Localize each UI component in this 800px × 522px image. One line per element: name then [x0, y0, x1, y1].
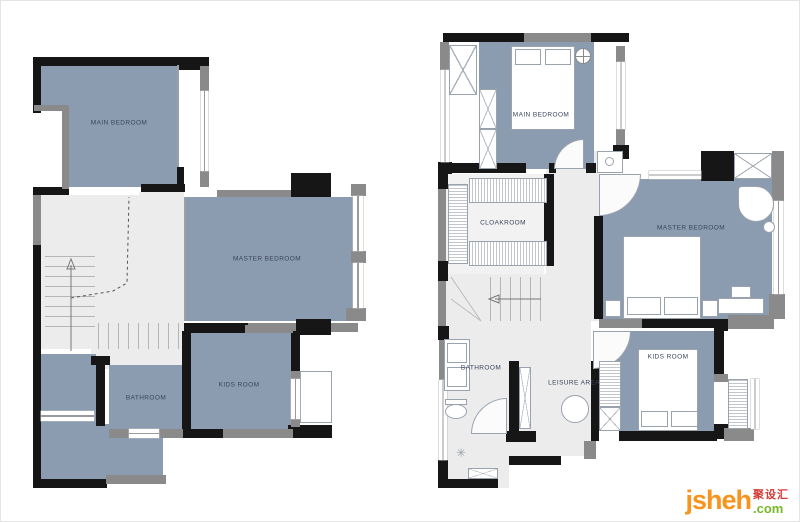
stairs-upper [481, 277, 544, 321]
stairs-left [45, 253, 95, 336]
window [774, 201, 783, 294]
wall-segment-gray [728, 315, 774, 329]
ceiling-fan-icon [575, 48, 591, 64]
wall-segment-gray [109, 429, 129, 438]
wall-segment [586, 163, 596, 173]
hall-cabinet [519, 367, 531, 429]
wall-segment [438, 326, 449, 340]
room-label-kids-room-r: KIDS ROOM [648, 354, 689, 361]
tv-console [731, 286, 751, 298]
pillow [671, 411, 698, 427]
plant-icon [763, 221, 775, 233]
wall-segment [506, 431, 536, 442]
wall-segment-gray [200, 66, 209, 91]
closet [734, 153, 772, 179]
window [353, 263, 363, 308]
wall-segment [701, 151, 734, 181]
wall-segment [183, 429, 223, 438]
wall-segment-gray [217, 190, 291, 197]
room-label-master-bedroom-r: MASTER BEDROOM [657, 225, 725, 232]
pillow [664, 297, 698, 315]
wall-segment-gray [346, 308, 366, 321]
room-label-kids-room: KIDS ROOM [219, 382, 260, 389]
bay-window [300, 371, 332, 423]
wall-segment-gray [524, 33, 591, 42]
toilet-tank [445, 399, 467, 405]
wardrobe [479, 89, 497, 129]
room-label-bathroom: BATHROOM [126, 395, 166, 402]
wardrobe [479, 129, 497, 169]
room-label-bathroom-r: BATHROOM [461, 365, 501, 372]
wall-segment-gray [106, 475, 166, 484]
room-label-leisure-area: LEISURE AREA [548, 380, 600, 387]
wall-segment [438, 169, 448, 189]
wall-segment [96, 364, 105, 426]
wall-segment-gray [351, 251, 366, 263]
wall-segment-gray [772, 151, 784, 179]
wall-segment [591, 33, 629, 42]
window [353, 196, 363, 251]
room-label-master-bedroom: MASTER BEDROOM [233, 256, 301, 263]
wall-segment [177, 167, 184, 187]
window [201, 91, 208, 171]
window [291, 379, 300, 419]
wall-segment-gray [159, 429, 183, 438]
wall-segment [291, 173, 331, 197]
wall-segment [33, 245, 41, 349]
window [41, 411, 94, 421]
wall-segment [714, 331, 724, 376]
sink-basin [447, 343, 467, 363]
nightstand [702, 300, 718, 317]
wall-segment-gray [584, 441, 596, 459]
toilet [445, 404, 467, 419]
wall-segment [619, 431, 717, 441]
wall-segment [443, 33, 524, 42]
window [441, 70, 449, 162]
wall-segment-gray [440, 42, 449, 70]
wc-fixture [605, 157, 614, 166]
wall-segment [594, 216, 603, 319]
clothes-rack [469, 178, 547, 203]
pillow [627, 297, 661, 315]
wall-segment-gray [438, 189, 446, 261]
floorplan-canvas: MAIN BEDROOM MASTER BEDROOM KIDS ROOM BA… [0, 0, 800, 522]
tv-stand [718, 298, 764, 314]
brand-tld: .com [753, 502, 789, 515]
wall-segment [91, 356, 110, 365]
pillow [641, 411, 668, 427]
wardrobe [599, 361, 621, 407]
wall-segment-gray [351, 184, 366, 196]
wall-segment-gray [438, 281, 446, 326]
wall-segment-gray [616, 129, 625, 145]
wall-segment [182, 331, 191, 431]
room-label-main-bedroom-r: MAIN BEDROOM [513, 112, 569, 119]
wall-segment [591, 361, 599, 441]
window [129, 429, 159, 438]
watermark-logo: jsheh 聚设汇 .com [685, 488, 789, 515]
wall-segment [438, 479, 498, 488]
wall-segment-gray [62, 111, 69, 189]
room-label-main-bedroom: MAIN BEDROOM [91, 120, 147, 127]
wall-segment-gray [331, 323, 358, 332]
bay-radiator [728, 379, 748, 429]
wall-segment [184, 323, 248, 331]
wall-line [177, 65, 179, 167]
shower-drain-icon: ✳ [456, 447, 466, 459]
window [617, 62, 625, 129]
wardrobe [599, 407, 621, 431]
wall-segment-gray [291, 419, 300, 427]
wall-segment-gray [616, 46, 625, 62]
pillow [515, 49, 541, 65]
wall-segment-gray [772, 179, 784, 201]
stairs-winders [451, 277, 481, 321]
wall-line [184, 197, 186, 321]
wall-segment-gray [724, 428, 754, 441]
closet [449, 45, 477, 95]
wall-segment-gray [599, 319, 642, 328]
clothes-rack [469, 241, 547, 266]
wall-segment-gray [223, 429, 293, 438]
wall-segment [714, 319, 728, 331]
round-table [561, 395, 589, 423]
corner-chair [738, 186, 774, 222]
clothes-rack [448, 184, 468, 264]
stairs-lower [89, 323, 181, 349]
room-label-cloakroom: CLOAKROOM [480, 220, 526, 227]
wall-segment-gray [200, 171, 209, 187]
floor-mat [468, 468, 498, 479]
wall-segment [509, 361, 519, 439]
nightstand [605, 300, 621, 317]
wall-segment-gray [714, 374, 728, 382]
wall-segment-gray [291, 371, 300, 379]
wall-segment-gray [248, 323, 296, 331]
brand-cn: 聚设汇 [753, 490, 789, 501]
wall-segment [296, 319, 331, 335]
window [649, 171, 701, 179]
wall-segment [33, 349, 41, 488]
wall-segment-gray [33, 195, 41, 245]
pillow [545, 49, 571, 65]
window [439, 380, 447, 460]
wall-segment [438, 261, 448, 281]
wall-segment [509, 456, 561, 465]
brand-name: jsheh [685, 488, 751, 512]
wall-segment [33, 479, 107, 488]
window [751, 379, 759, 429]
